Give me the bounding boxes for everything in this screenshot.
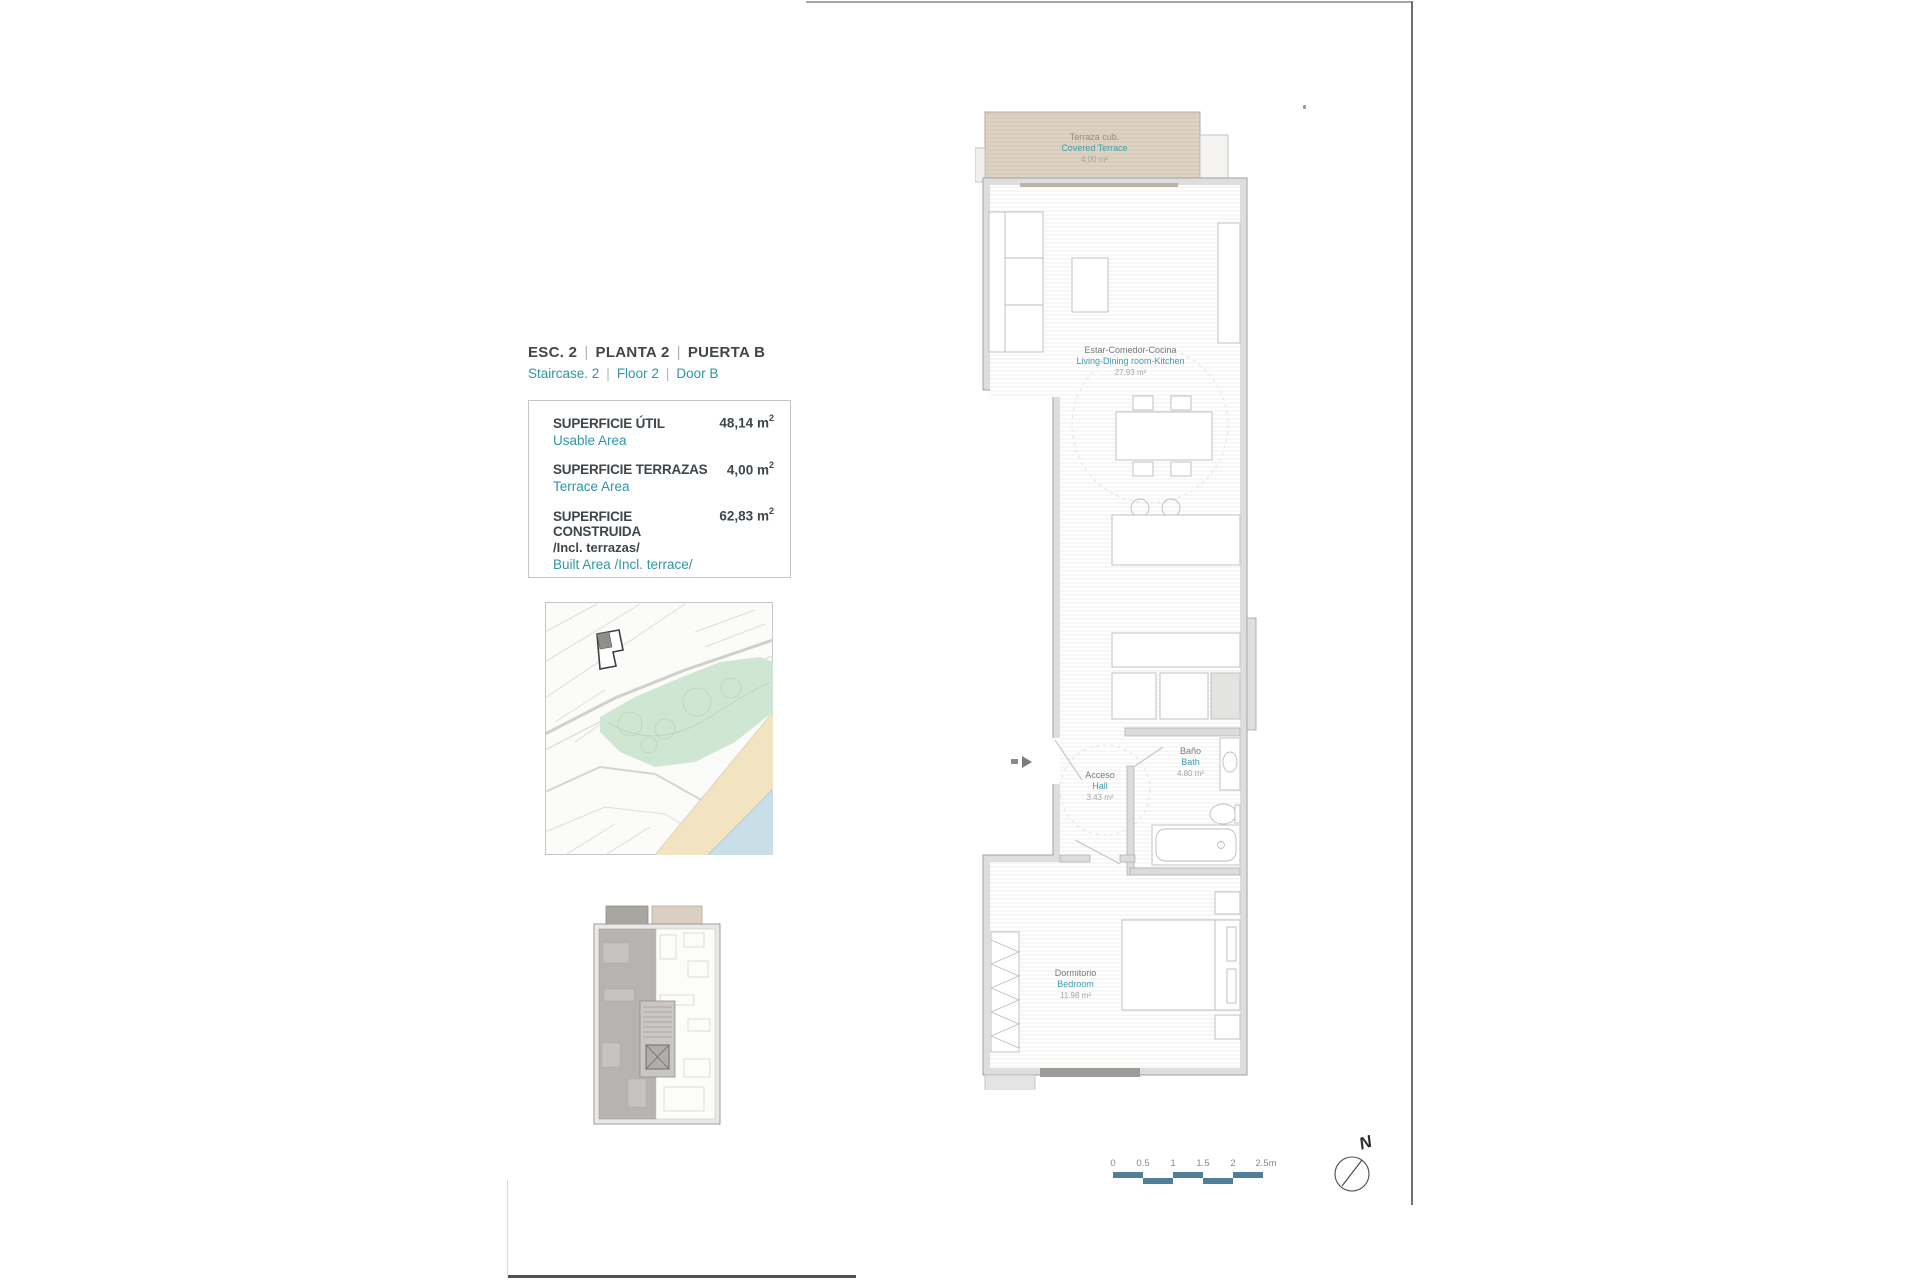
built-area-label2: /Incl. terrazas/ [553, 540, 774, 555]
usable-area-label: SUPERFICIE ÚTIL [553, 416, 665, 431]
dining-chair [1133, 462, 1153, 476]
terrace-area-label: SUPERFICIE TERRAZAS [553, 462, 707, 477]
subtitle-floor: Floor 2 [617, 366, 659, 381]
svg-text:0: 0 [1110, 1158, 1115, 1169]
north-compass-icon: N [1328, 1130, 1382, 1196]
title-planta: PLANTA 2 [596, 344, 670, 361]
toilet-tank [1235, 805, 1240, 823]
bedroom-window [1040, 1068, 1140, 1077]
nightstand [1215, 1015, 1240, 1039]
shaft [1211, 673, 1240, 719]
title-block: ESC. 2|PLANTA 2|PUERTA B Staircase. 2|Fl… [528, 344, 765, 381]
scale-bar: 0 0.5 1 1.5 2 2.5m [1108, 1156, 1283, 1192]
page-edge-bottom [508, 1275, 856, 1278]
unit-title: ESC. 2|PLANTA 2|PUERTA B [528, 344, 765, 361]
toilet [1210, 804, 1236, 824]
subtitle-staircase: Staircase. 2 [528, 366, 599, 381]
pillow [1227, 927, 1236, 961]
built-area-value: 62,83 m2 [719, 507, 774, 524]
compass-north-label: N [1357, 1131, 1375, 1153]
site-location-map [545, 602, 773, 855]
title-puerta: PUERTA B [688, 344, 765, 361]
title-esc: ESC. 2 [528, 344, 577, 361]
closet [1112, 673, 1156, 719]
terrace-area-value: 4,00 m2 [727, 461, 774, 478]
svg-text:2.5m: 2.5m [1255, 1158, 1276, 1169]
page-edge-right [1411, 1, 1413, 1205]
unit-subtitle: Staircase. 2|Floor 2|Door B [528, 366, 765, 381]
svg-text:0.5: 0.5 [1136, 1158, 1149, 1169]
terrace-area-row: SUPERFICIE TERRAZAS 4,00 m2 Terrace Area [553, 461, 774, 495]
subtitle-door: Door B [676, 366, 718, 381]
title-separator: | [577, 344, 595, 361]
terrace-sliding-door [1020, 183, 1178, 187]
keyplan-terrace-left [606, 906, 648, 924]
usable-area-sublabel: Usable Area [553, 433, 774, 448]
nightstand [1215, 892, 1240, 914]
entrance-arrow-icon [1011, 756, 1032, 768]
coffee-table [1072, 258, 1108, 312]
built-area-row: SUPERFICIE CONSTRUIDA 62,83 m2 /Incl. te… [553, 507, 774, 572]
sofa [989, 212, 1043, 352]
pillow [1227, 969, 1236, 1003]
closet [1160, 673, 1208, 719]
built-area-sublabel: Built Area /Incl. terrace/ [553, 557, 774, 572]
subtitle-separator: | [659, 366, 677, 381]
kitchen-island [1112, 633, 1240, 667]
subtitle-separator: | [599, 366, 617, 381]
scale-bar-labels: 0 0.5 1 1.5 2 2.5m [1110, 1158, 1276, 1169]
dining-table [1116, 412, 1212, 460]
area-summary-box: SUPERFICIE ÚTIL 48,14 m2 Usable Area SUP… [528, 400, 791, 578]
keyplan-core [640, 1001, 675, 1077]
floor-key-plan [590, 903, 725, 1128]
title-separator: | [670, 344, 688, 361]
svg-text:1: 1 [1170, 1158, 1175, 1169]
svg-text:2: 2 [1230, 1158, 1235, 1169]
usable-area-row: SUPERFICIE ÚTIL 48,14 m2 Usable Area [553, 414, 774, 448]
built-area-label: SUPERFICIE CONSTRUIDA [553, 509, 719, 539]
svg-text:1.5: 1.5 [1196, 1158, 1209, 1169]
dining-chair [1133, 396, 1153, 410]
bathtub [1152, 825, 1240, 865]
wardrobe [991, 932, 1019, 1052]
dining-chair [1171, 462, 1191, 476]
dining-chair [1171, 396, 1191, 410]
compass-needle [1342, 1160, 1362, 1186]
sideboard [1218, 223, 1240, 343]
main-floor-plan [975, 100, 1275, 1090]
bed [1122, 920, 1240, 1010]
covered-terrace-area [975, 112, 1228, 182]
stray-dot [1303, 105, 1306, 109]
scale-bar-segments [1113, 1172, 1263, 1184]
terrace-area-sublabel: Terrace Area [553, 479, 774, 494]
page-edge-left [507, 1180, 508, 1276]
kitchen-counter [1112, 515, 1240, 565]
page-edge-top [806, 1, 1412, 3]
bottom-left-step [985, 1075, 1035, 1090]
compass-circle [1335, 1157, 1369, 1191]
keyplan-terrace-right [652, 906, 702, 924]
usable-area-value: 48,14 m2 [719, 414, 774, 431]
